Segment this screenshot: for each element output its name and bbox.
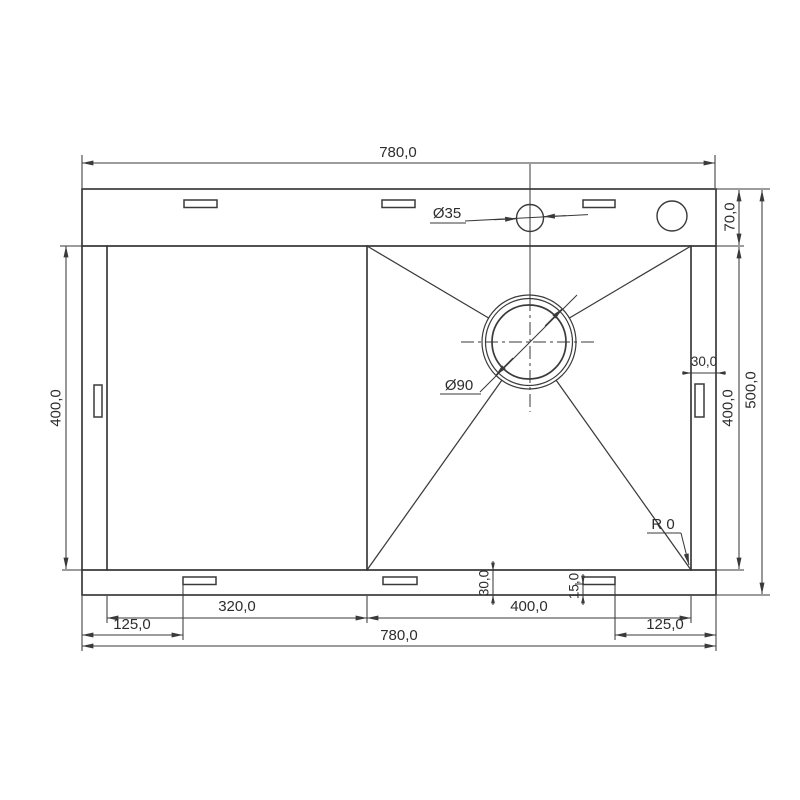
mounting-slot-top-left: [184, 200, 217, 208]
mounting-slot-left-side: [94, 385, 102, 417]
diameter-leader-line: [465, 215, 588, 221]
accessory-hole: [657, 201, 687, 231]
mounting-slot-bottom-center: [383, 577, 417, 585]
mounting-slot-bottom-left: [183, 577, 216, 585]
drain-x-line: [367, 380, 502, 570]
sink-outer-outline: [82, 189, 716, 595]
mounting-slot-top-right: [583, 200, 615, 208]
dim-arrow: [496, 358, 513, 375]
label-faucet-hole-diameter: Ø35: [433, 205, 461, 222]
dim-arrow: [545, 309, 562, 326]
label-corner-radius: R 0: [651, 516, 674, 533]
dim-label-right-deck-width: 30,0: [691, 354, 717, 369]
mounting-slot-bottom-right: [583, 577, 615, 585]
technical-drawing-canvas: 780,0 780,0 320,0 400,0 125,0 125,0 400,…: [0, 0, 800, 800]
mounting-slot-top-center: [382, 200, 415, 208]
dim-label-bowl-depth: 400,0: [719, 389, 736, 427]
drain-x-line: [569, 246, 691, 318]
dim-arrow: [544, 216, 567, 217]
dim-label-slot-offset-right: 125,0: [646, 616, 684, 633]
drain-x-line: [367, 246, 489, 318]
dim-label-bottom-deck-depth: 30,0: [477, 570, 492, 596]
label-drain-hole-diameter: Ø90: [445, 377, 473, 394]
dim-label-overall-width-top: 780,0: [379, 144, 417, 161]
dim-label-overall-depth: 500,0: [742, 371, 759, 409]
dim-label-slot-offset-left: 125,0: [113, 616, 151, 633]
dim-label-bowl-width: 400,0: [510, 598, 548, 615]
mounting-slot-right-side: [695, 384, 704, 417]
drain-x-line: [556, 380, 691, 570]
dim-label-overall-width-bottom: 780,0: [380, 627, 418, 644]
dim-label-top-deck-depth: 70,0: [721, 202, 738, 231]
sink-drawing-svg: 780,0 780,0 320,0 400,0 125,0 125,0 400,…: [0, 0, 800, 800]
dim-label-left-section-width: 320,0: [218, 598, 256, 615]
radius-leader-line: [681, 533, 689, 565]
dim-label-left-section-depth: 400,0: [47, 389, 64, 427]
dim-label-slot-edge-offset: 15,0: [567, 573, 582, 599]
